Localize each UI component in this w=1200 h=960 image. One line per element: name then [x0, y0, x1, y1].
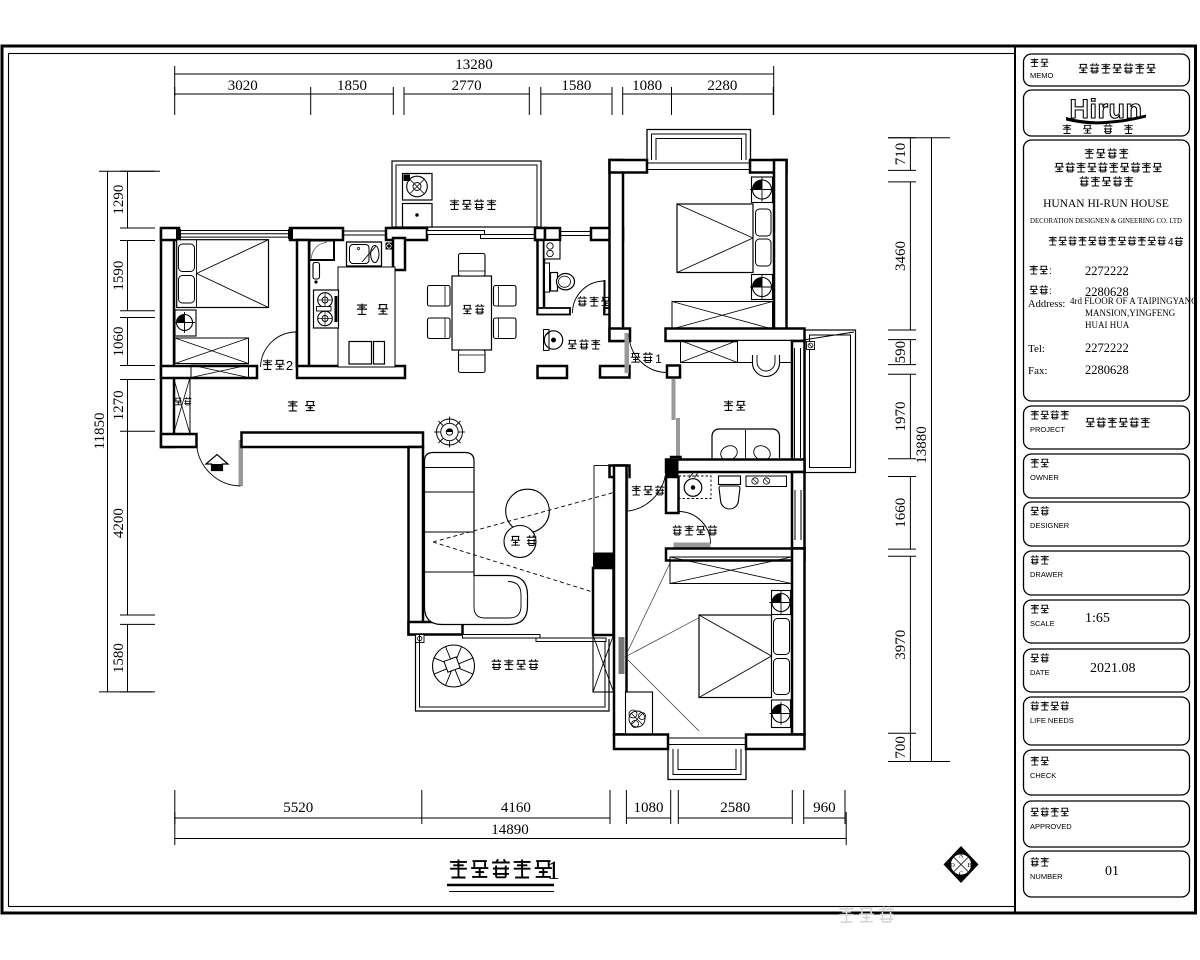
- svg-text:13880: 13880: [914, 426, 930, 464]
- svg-text:1580: 1580: [561, 78, 591, 94]
- svg-text:3020: 3020: [228, 78, 258, 94]
- svg-text:1060: 1060: [111, 327, 127, 357]
- svg-text:2272222: 2272222: [1085, 264, 1129, 278]
- svg-text:PROJECT: PROJECT: [1030, 425, 1065, 434]
- svg-text:MANSION,YINGFENG: MANSION,YINGFENG: [1085, 308, 1176, 318]
- svg-text::: :: [1049, 286, 1052, 297]
- svg-text:1580: 1580: [111, 643, 127, 673]
- svg-text:2: 2: [286, 358, 293, 373]
- svg-text:A: A: [959, 853, 964, 860]
- svg-text:1660: 1660: [893, 498, 909, 528]
- svg-text:4rd FLOOR OF A TAIPINGYANG: 4rd FLOOR OF A TAIPINGYANG: [1070, 296, 1198, 306]
- svg-text:1080: 1080: [634, 800, 664, 816]
- svg-text:HUNAN HI-RUN HOUSE: HUNAN HI-RUN HOUSE: [1043, 198, 1169, 210]
- svg-text:1:65: 1:65: [1085, 611, 1110, 626]
- svg-text:5520: 5520: [283, 800, 313, 816]
- svg-text:APPROVED: APPROVED: [1030, 822, 1072, 831]
- svg-text:LIFE NEEDS: LIFE NEEDS: [1030, 716, 1074, 725]
- svg-text:2770: 2770: [452, 78, 482, 94]
- svg-text:1: 1: [547, 856, 560, 885]
- svg-text:1270: 1270: [111, 390, 127, 420]
- svg-text:DESIGNER: DESIGNER: [1030, 521, 1070, 530]
- svg-text:1080: 1080: [632, 78, 662, 94]
- svg-text::: :: [1049, 266, 1052, 277]
- svg-text:4200: 4200: [111, 508, 127, 538]
- svg-text:960: 960: [813, 800, 836, 816]
- svg-text:1970: 1970: [893, 402, 909, 432]
- svg-text:OWNER: OWNER: [1030, 473, 1059, 482]
- svg-text:HUAI HUA: HUAI HUA: [1085, 320, 1130, 330]
- svg-text:NUMBER: NUMBER: [1030, 872, 1063, 881]
- svg-text:2580: 2580: [720, 800, 750, 816]
- svg-text:590: 590: [893, 341, 909, 364]
- svg-text:Address:: Address:: [1028, 299, 1065, 310]
- svg-text:2280: 2280: [707, 78, 737, 94]
- svg-text:1: 1: [655, 352, 662, 366]
- svg-text:CHECK: CHECK: [1030, 771, 1056, 780]
- svg-text:01: 01: [1105, 864, 1119, 879]
- svg-text:D: D: [950, 862, 955, 869]
- svg-text:MEMO: MEMO: [1030, 71, 1053, 80]
- svg-text:Fax:: Fax:: [1028, 365, 1048, 377]
- svg-text:2272222: 2272222: [1085, 341, 1129, 355]
- svg-text:1590: 1590: [111, 261, 127, 291]
- svg-text:2021.08: 2021.08: [1090, 661, 1136, 676]
- svg-text:14890: 14890: [491, 822, 529, 838]
- svg-text:DATE: DATE: [1030, 668, 1049, 677]
- svg-text:4160: 4160: [501, 800, 531, 816]
- svg-text:13280: 13280: [455, 57, 493, 73]
- svg-text:3460: 3460: [893, 241, 909, 271]
- svg-text:DRAWER: DRAWER: [1030, 570, 1064, 579]
- svg-text:700: 700: [893, 736, 909, 759]
- svg-text:710: 710: [893, 143, 909, 166]
- svg-text:11850: 11850: [92, 413, 108, 450]
- svg-text:Tel:: Tel:: [1028, 343, 1045, 355]
- svg-text:4: 4: [1168, 237, 1174, 248]
- svg-text:1850: 1850: [337, 78, 367, 94]
- svg-text:1290: 1290: [111, 185, 127, 215]
- svg-text:B: B: [967, 862, 972, 869]
- svg-text:SCALE: SCALE: [1030, 619, 1055, 628]
- svg-text:C: C: [959, 871, 963, 878]
- svg-text:2280628: 2280628: [1085, 363, 1129, 377]
- svg-text:3970: 3970: [893, 630, 909, 660]
- svg-text:DECORATION DESIGNEN & GINEERIN: DECORATION DESIGNEN & GINEERING CO. LTD: [1030, 218, 1182, 225]
